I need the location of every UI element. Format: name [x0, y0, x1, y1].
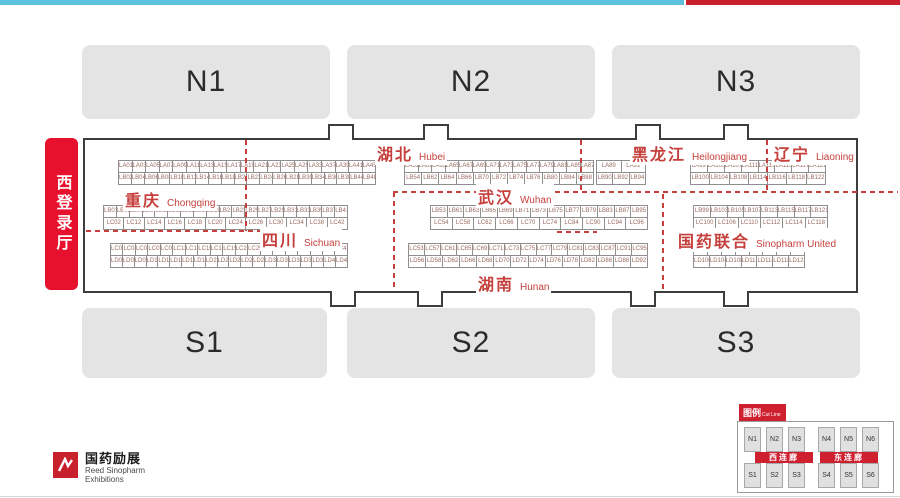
region-en: Sichuan: [304, 238, 340, 249]
legend-hall-cell: N2: [766, 427, 783, 452]
booth-cell: LB88: [576, 172, 594, 185]
legend-east-corridor: 东连廊: [820, 452, 878, 463]
hall-connector: [723, 291, 749, 307]
booth-cell: LC66: [495, 217, 518, 230]
booth-row: LD56LD58LD62LD66LD68LD70LD72LD74LD76LD78…: [408, 255, 648, 268]
booth-cell: LD88: [613, 255, 631, 268]
booth-cell: LB48: [362, 172, 376, 185]
region-zh: 黑龙江: [632, 141, 686, 165]
booth-cell: LB36: [324, 172, 338, 185]
region-label-liaoning: 辽宁 Liaoning: [772, 141, 856, 165]
booth-cell: LC58: [452, 217, 475, 230]
booth-cell: LB94: [629, 172, 646, 185]
booth-cell: LD82: [579, 255, 597, 268]
booth-cell: LC96: [625, 217, 648, 230]
booth-cell: LD122: [788, 255, 805, 268]
hall-connector: [417, 291, 443, 307]
region-label-chongqing: 重庆 Chongqing: [123, 187, 217, 211]
booth-cell: LD56: [408, 255, 426, 268]
booth-cell: LB28: [285, 172, 299, 185]
booth-cell: LD108: [725, 255, 742, 268]
booth-cell: LD68: [476, 255, 494, 268]
floor-plan: N1 N2 N3 西登录厅 LA01LA03LA05LA07LA09LA11LA…: [0, 0, 900, 498]
booth-cell: LD58: [425, 255, 443, 268]
booth-cell: LB44: [349, 172, 363, 185]
cut-line-dashed: [580, 140, 582, 192]
region-zh: 辽宁: [774, 141, 810, 165]
legend-box: N1N2N3N4N5N6 西连廊 东连廊 S1S2S3S4S5S6: [737, 421, 894, 493]
region-zh: 武汉: [478, 184, 514, 208]
booth-cell: LC20: [205, 217, 226, 230]
legend-hall-cell: S1: [744, 463, 761, 488]
legend-corridor-bars: 西连廊 东连廊: [755, 452, 887, 463]
booth-row: LD100LD104LD108LD112LD114LD118LD122: [693, 255, 805, 268]
booth-cell: LB116: [767, 172, 787, 185]
booth-cell: LD112: [741, 255, 758, 268]
booth-cell: LC16: [164, 217, 185, 230]
logo-en-2: Exhibitions: [85, 475, 145, 484]
booth-cell: LC02: [103, 217, 124, 230]
booth-table: LC53LC57LC61LC65LC69LC71LC73LC75LC77LC79…: [408, 243, 648, 268]
booth-cell: LC90: [582, 217, 605, 230]
booth-cell: LB84: [559, 172, 577, 185]
booth-cell: LB04: [131, 172, 145, 185]
booth-cell: LC70: [517, 217, 540, 230]
region-en: Hubei: [419, 152, 445, 163]
region-label-sinopharm-united: 国药联合 Sinopharm United: [676, 228, 838, 252]
cut-line-dashed: [766, 140, 768, 192]
booth-table: LA01LA03LA05LA07LA09LA11LA13LA15LA17LA19…: [118, 160, 376, 185]
booth-cell: LB38: [336, 172, 350, 185]
legend-title-badge: 图例 Cut Line: [739, 404, 786, 421]
region-en: Heilongjiang: [692, 152, 747, 163]
hall-connector: [635, 124, 661, 140]
booth-cell: LB08: [157, 172, 171, 185]
booth-cell: LD76: [545, 255, 563, 268]
booth-cell: LD72: [510, 255, 528, 268]
legend-title-zh: 图例: [743, 406, 761, 419]
booth-cell: LB92: [612, 172, 629, 185]
cut-line-dashed: [393, 191, 898, 193]
booth-cell: LD92: [630, 255, 648, 268]
hall-connector: [328, 124, 354, 140]
legend-west-corridor: 西连廊: [755, 452, 813, 463]
west-registration-hall-label: 西登录厅: [50, 174, 74, 254]
hall-n2: N2: [347, 45, 595, 119]
hall-connector: [423, 124, 449, 140]
booth-cell: LB54: [404, 172, 422, 185]
booth-cell: LC14: [144, 217, 165, 230]
hall-connector: [723, 124, 749, 140]
booth-cell: LD86: [596, 255, 614, 268]
booth-cell: LC12: [123, 217, 144, 230]
booth-cell: LB14: [195, 172, 209, 185]
booth-cell: LB64: [438, 172, 456, 185]
booth-cell: LD100: [693, 255, 710, 268]
legend-north-row: N1N2N3N4N5N6: [744, 427, 887, 452]
legend-south-row: S1S2S3S4S5S6: [744, 463, 887, 488]
booth-cell: LB90: [596, 172, 613, 185]
booth-cell: LB18: [221, 172, 235, 185]
cut-line-dashed: [557, 231, 597, 233]
booth-cell: LD104: [709, 255, 726, 268]
cut-line-dashed: [662, 194, 664, 291]
booth-cell: LB122: [806, 172, 826, 185]
legend-hall-cell: N4: [818, 427, 835, 452]
booth-row: LB02LB04LB06LB08LB10LB12LB14LB16LB18LB20…: [118, 172, 376, 185]
booth-cell: LC84: [560, 217, 583, 230]
bottom-rule: [0, 496, 900, 497]
booth-cell: LC24: [225, 217, 246, 230]
hall-s2: S2: [347, 308, 595, 378]
legend-hall-cell: S6: [862, 463, 879, 488]
booth-cell: LD66: [459, 255, 477, 268]
region-zh: 重庆: [125, 187, 161, 211]
region-zh: 湖北: [377, 141, 413, 165]
hall-connector: [630, 291, 656, 307]
booth-cell: LB26: [272, 172, 286, 185]
legend-title-en: Cut Line: [762, 412, 781, 418]
booth-cell: LC74: [539, 217, 562, 230]
hall-s1: S1: [82, 308, 327, 378]
top-accent-bar-right: [686, 0, 900, 5]
legend-hall-cell: N1: [744, 427, 761, 452]
region-label-sichuan: 四川 Sichuan: [260, 227, 342, 251]
booth-cell: LD114: [756, 255, 773, 268]
booth-cell: LB34: [311, 172, 325, 185]
logo-glyph-icon: [57, 457, 74, 474]
legend-hall-cell: S2: [766, 463, 783, 488]
legend-hall-cell: N6: [862, 427, 879, 452]
booth-row: LD02LD06LD08LD10LD12LD14LD16LD18LD20LD22…: [110, 255, 348, 268]
booth-cell: LB02: [118, 172, 132, 185]
booth-cell: LD78: [562, 255, 580, 268]
booth-cell: LB62: [421, 172, 439, 185]
legend-hall-cell: N3: [788, 427, 805, 452]
legend-hall-cell: S5: [840, 463, 857, 488]
booth-cell: LB12: [182, 172, 196, 185]
logo-en-1: Reed Sinopharm: [85, 466, 145, 475]
booth-row: LB100LB104LB108LB114LB116LB118LB122: [690, 172, 826, 185]
booth-cell: LB108: [729, 172, 749, 185]
booth-cell: LD74: [528, 255, 546, 268]
region-en: Sinopharm United: [756, 239, 836, 250]
region-label-hunan: 湖南 Hunan: [476, 271, 551, 295]
cut-line-dashed: [245, 140, 247, 231]
booth-cell: LC54: [430, 217, 453, 230]
hall-n3: N3: [612, 45, 860, 119]
booth-cell: LB118: [786, 172, 806, 185]
region-zh: 国药联合: [678, 228, 750, 252]
logo-zh: 国药励展: [85, 452, 145, 466]
booth-cell: LB10: [169, 172, 183, 185]
region-en: Chongqing: [167, 198, 215, 209]
booth-cell: LB24: [259, 172, 273, 185]
booth-cell: LB06: [144, 172, 158, 185]
west-registration-hall: 西登录厅: [45, 138, 78, 290]
region-label-heilongjiang: 黑龙江 Heilongjiang: [630, 141, 749, 165]
region-en: Hunan: [520, 282, 549, 293]
booth-cell: LB22: [246, 172, 260, 185]
hall-s3: S3: [612, 308, 860, 378]
region-en: Wuhan: [520, 195, 552, 206]
booth-row: LC54LC58LC62LC66LC70LC74LC84LC90LC94LC96: [430, 217, 648, 230]
booth-cell: LB30: [298, 172, 312, 185]
booth-cell: LC94: [604, 217, 627, 230]
legend-hall-cell: S4: [818, 463, 835, 488]
booth-table: LB53LB61LB63LB65LB69LB71LB73LB75LB77LB79…: [430, 205, 648, 230]
hall-n1: N1: [82, 45, 330, 119]
booth-cell: LB16: [208, 172, 222, 185]
region-zh: 四川: [262, 227, 298, 251]
logo-text: 国药励展 Reed Sinopharm Exhibitions: [85, 452, 145, 484]
booth-cell: LD118: [772, 255, 789, 268]
booth-table: LB99LB103LB105LB107LB113LB115LB117LB121L…: [693, 205, 828, 230]
booth-cell: LC62: [473, 217, 496, 230]
cut-line-dashed: [393, 192, 395, 291]
booth-cell: LC18: [184, 217, 205, 230]
top-accent-bar-left: [0, 0, 684, 5]
booth-cell: LD46: [335, 255, 348, 268]
hall-connector: [330, 291, 356, 307]
legend-hall-cell: N5: [840, 427, 857, 452]
booth-cell: LB100: [690, 172, 710, 185]
region-label-hubei: 湖北 Hubei: [375, 141, 447, 165]
booth-cell: LD62: [442, 255, 460, 268]
region-en: Liaoning: [816, 152, 854, 163]
reed-sinopharm-logo: 国药励展 Reed Sinopharm Exhibitions: [53, 452, 145, 484]
booth-row: LB90LB92LB94: [596, 172, 646, 185]
reed-sinopharm-logo-mark: [53, 452, 78, 478]
booth-cell: LD70: [493, 255, 511, 268]
legend-hall-cell: S3: [788, 463, 805, 488]
booth-cell: LB66: [456, 172, 474, 185]
booth-cell: LB104: [709, 172, 729, 185]
region-zh: 湖南: [478, 271, 514, 295]
region-label-wuhan: 武汉 Wuhan: [476, 184, 554, 208]
